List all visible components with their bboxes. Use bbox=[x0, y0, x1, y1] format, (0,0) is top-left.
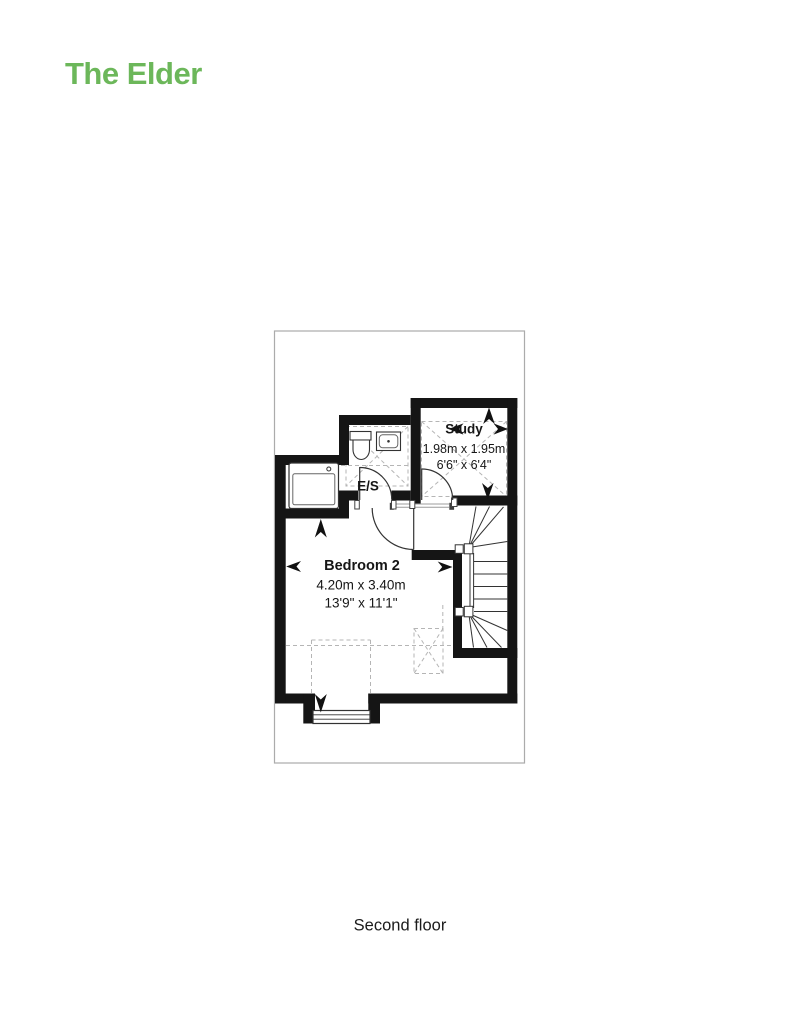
study-dimensions-metric: 1.98m x 1.95m bbox=[423, 442, 506, 456]
bedroom2-dimensions-metric: 4.20m x 3.40m bbox=[316, 577, 405, 592]
landing-threshold bbox=[390, 503, 454, 510]
toilet-icon bbox=[350, 432, 371, 460]
study-arrow-right-icon bbox=[494, 423, 509, 434]
floor-name-label: Second floor bbox=[354, 917, 447, 936]
study-room-label: Study bbox=[445, 421, 483, 436]
winder-staircase-icon bbox=[455, 507, 507, 648]
dormer-window-icon bbox=[313, 711, 370, 724]
floorplan-page: The Elder bbox=[0, 0, 800, 1036]
bedroom-door bbox=[372, 508, 414, 550]
ensuite-room-label: E/S bbox=[357, 479, 379, 494]
floor-plan-drawing bbox=[0, 0, 800, 1036]
bedroom-arrow-up-icon bbox=[315, 519, 327, 538]
bath-icon bbox=[289, 463, 339, 509]
bedroom-arrow-left-icon bbox=[286, 561, 301, 572]
bedroom2-dimensions-imperial: 13'9" x 11'1" bbox=[324, 595, 397, 610]
bedroom2-room-label: Bedroom 2 bbox=[324, 558, 400, 574]
stair-handrail bbox=[470, 554, 474, 608]
study-dimensions-imperial: 6'6" x 6'4" bbox=[437, 458, 492, 472]
bedroom-arrow-down-icon bbox=[315, 694, 327, 713]
rooflight-icon bbox=[414, 605, 443, 674]
study-arrow-up-icon bbox=[483, 408, 495, 425]
bedroom-arrow-right-icon bbox=[438, 562, 453, 573]
basin-icon bbox=[377, 432, 401, 451]
